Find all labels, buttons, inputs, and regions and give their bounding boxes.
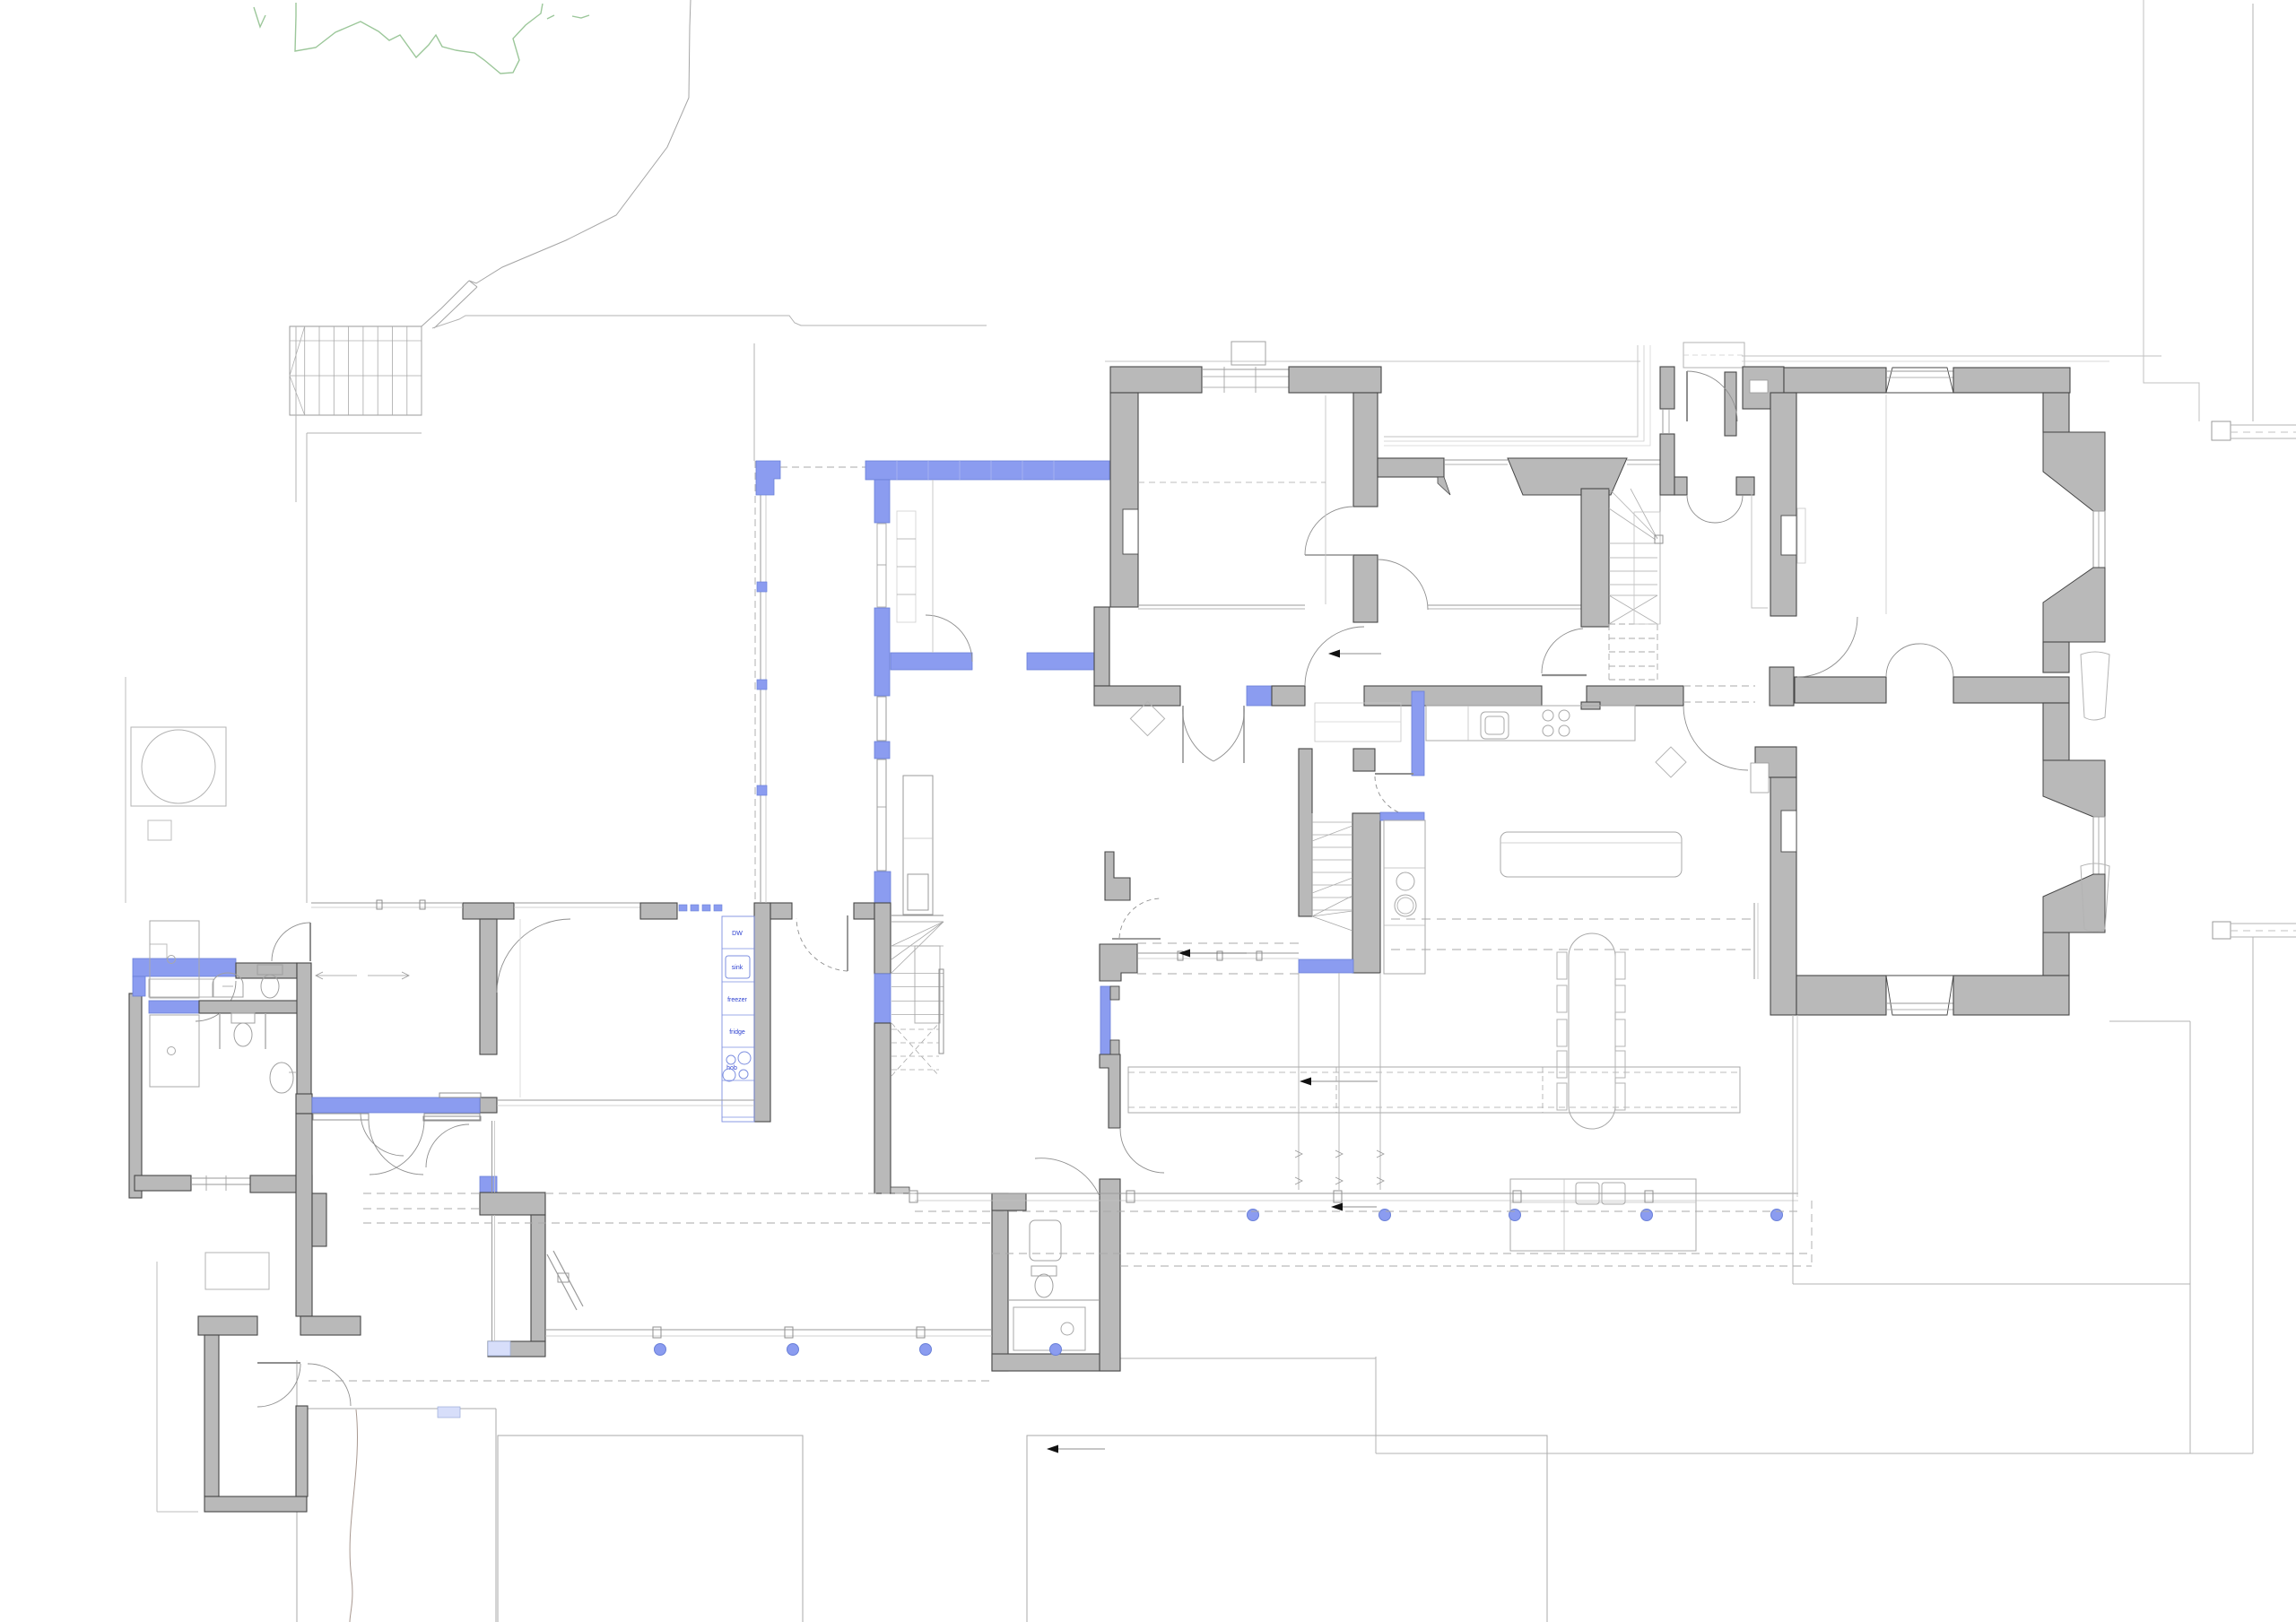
svg-text:fridge: fridge: [729, 1029, 745, 1036]
svg-text:hob: hob: [726, 1065, 737, 1071]
svg-text:DW: DW: [732, 931, 743, 937]
svg-text:sink: sink: [732, 965, 744, 971]
svg-text:freezer: freezer: [727, 997, 747, 1003]
